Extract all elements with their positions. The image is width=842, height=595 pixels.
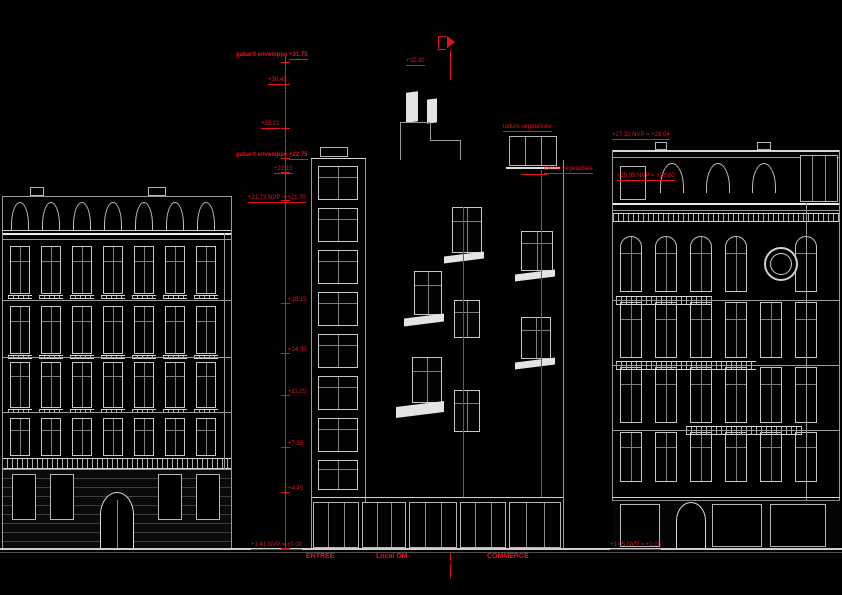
- building-edge: [839, 150, 840, 549]
- storefront: [362, 502, 406, 548]
- sill-tray: [515, 270, 555, 282]
- dormer-window: [42, 202, 60, 230]
- label-local-om: Local OM: [376, 553, 408, 560]
- facade-window: [41, 418, 61, 456]
- right-level-annotation: +27.32 NVP = +28.04: [612, 132, 670, 139]
- level-annotation: +22.10: [274, 166, 293, 173]
- street-level-left: +1.41 NVP = +0.00: [251, 542, 302, 549]
- french-window: [620, 367, 642, 423]
- sill-tray: [396, 401, 444, 418]
- french-window: [690, 236, 712, 292]
- step-line: [430, 122, 431, 140]
- storefront: [620, 504, 660, 547]
- step-line: [400, 122, 401, 160]
- facade-window: [454, 300, 480, 338]
- french-window: [690, 432, 712, 482]
- window-rail: [132, 295, 156, 299]
- dormer-window: [197, 202, 215, 230]
- sill-tray: [444, 252, 484, 264]
- french-window: [655, 432, 677, 482]
- gabarit-label: gabarit enveloppe: [236, 152, 287, 158]
- dimension-tick: [281, 62, 290, 63]
- roof-step-panel: [427, 98, 437, 123]
- facade-window: [134, 306, 154, 354]
- building-edge: [2, 196, 3, 549]
- tower-window: [318, 460, 358, 490]
- step-line: [400, 122, 430, 123]
- french-window: [725, 302, 747, 358]
- french-window: [655, 236, 677, 292]
- french-window: [725, 236, 747, 292]
- window-rail: [70, 295, 94, 299]
- ground-window: [196, 474, 220, 520]
- dormer-window: [104, 202, 122, 230]
- balustrade-band: [2, 458, 232, 469]
- facade-window: [165, 306, 185, 354]
- facade-window: [521, 231, 553, 271]
- window-rail: [163, 295, 187, 299]
- french-window: [725, 432, 747, 482]
- pavilion-mullion: [525, 137, 526, 165]
- french-window: [620, 236, 642, 292]
- sill-tray: [404, 314, 444, 327]
- storefront-mullion: [328, 503, 329, 547]
- storefront-mullion: [377, 503, 378, 547]
- storefront-mullion: [344, 503, 345, 547]
- french-window: [655, 367, 677, 423]
- section-marker-icon: [438, 36, 446, 50]
- storefront-mullion: [391, 503, 392, 547]
- facade-window: [72, 418, 92, 456]
- chimney: [30, 187, 44, 196]
- facade-window: [41, 362, 61, 408]
- facade-edge: [541, 170, 542, 497]
- dimension-tick: [281, 128, 290, 129]
- section-line: [450, 50, 451, 80]
- level-annotation: +30.48: [268, 77, 287, 84]
- entrance-door: [676, 502, 706, 549]
- attic-mullion: [812, 156, 813, 201]
- dormer-window: [706, 163, 730, 193]
- window-rail: [101, 295, 125, 299]
- french-window: [690, 302, 712, 358]
- leader-line: [521, 174, 547, 175]
- attic-mullion: [825, 156, 826, 201]
- tower-parapet: [320, 147, 348, 157]
- french-window: [725, 367, 747, 423]
- storefront-mullion: [526, 503, 527, 547]
- roof-line: [2, 196, 232, 197]
- gabarit-annotation-top: gabarit enveloppe +31.75: [236, 52, 308, 59]
- storefront: [313, 502, 359, 548]
- gabarit-value: +22.75: [289, 152, 308, 160]
- roof-line: [612, 150, 840, 152]
- string-course: [2, 300, 232, 301]
- facade-window: [521, 317, 551, 359]
- cornice: [2, 233, 232, 240]
- facade-window: [196, 306, 216, 354]
- step-line: [460, 140, 461, 160]
- storefront-mullion: [544, 503, 545, 547]
- facade-window: [10, 306, 30, 354]
- facade-window: [72, 246, 92, 294]
- section-line: [450, 564, 451, 578]
- tower-edge: [311, 158, 312, 549]
- facade-window: [72, 306, 92, 354]
- facade-window: [165, 246, 185, 294]
- tower-window: [318, 166, 358, 200]
- label-commerce: COMMERCE: [487, 553, 529, 560]
- facade-window: [196, 362, 216, 408]
- step-line: [430, 140, 460, 141]
- floor-level: +14.35: [288, 347, 307, 354]
- facade-window: [414, 271, 442, 315]
- roof-label-1: toiture végétalisée: [503, 124, 552, 131]
- tower-edge: [365, 158, 366, 549]
- facade-window: [41, 306, 61, 354]
- tower-window: [318, 208, 358, 242]
- building-edge: [231, 196, 232, 549]
- dormer-window: [166, 202, 184, 230]
- oculus-inner: [770, 253, 792, 275]
- dormer-window: [752, 163, 776, 193]
- facade-window: [103, 418, 123, 456]
- ridge-level: +32.30: [406, 58, 425, 65]
- section-arrow-icon: [447, 36, 455, 48]
- window-rail: [39, 295, 63, 299]
- facade-window: [196, 418, 216, 456]
- door-leaf-line: [117, 500, 118, 549]
- french-window: [620, 432, 642, 482]
- tower-window: [318, 250, 358, 284]
- french-window: [620, 302, 642, 358]
- ground-window: [12, 474, 36, 520]
- storefront-mullion: [475, 503, 476, 547]
- floor-level: +11.25: [288, 389, 306, 396]
- roof-pavilion: [509, 136, 557, 166]
- roof-step-panel: [406, 91, 418, 122]
- facade-window: [72, 362, 92, 408]
- tower-window: [318, 292, 358, 326]
- facade-window: [452, 207, 482, 253]
- elevation-sheet: gabarit enveloppe +31.75 +30.48 +25.21 g…: [0, 0, 842, 595]
- facade-edge: [563, 160, 564, 549]
- french-window: [760, 302, 782, 358]
- floor-level: +7.35: [288, 441, 303, 448]
- facade-edge: [463, 207, 464, 497]
- facade-window: [10, 418, 30, 456]
- chimney: [757, 142, 771, 150]
- facade-window: [134, 362, 154, 408]
- facade-drawing-layer: [0, 0, 842, 595]
- string-course: [2, 412, 232, 413]
- gabarit-annotation-low: gabarit enveloppe +22.75: [236, 152, 308, 159]
- tower-top: [311, 158, 366, 159]
- ground-line-lower: [0, 552, 842, 553]
- facade-window: [10, 362, 30, 408]
- attic-window: [620, 166, 646, 200]
- street-level-right: +1.05 NVP = +1.05: [610, 542, 661, 549]
- window-rail: [8, 295, 32, 299]
- storefront: [770, 504, 826, 547]
- floor-level: +4.45: [288, 486, 303, 493]
- facade-window: [134, 418, 154, 456]
- tower-window: [318, 376, 358, 410]
- french-window: [655, 302, 677, 358]
- label-entree: ENTREE: [306, 553, 334, 560]
- french-window: [690, 367, 712, 423]
- ground-window: [158, 474, 182, 520]
- tower-window: [318, 334, 358, 368]
- left-building-top-level: +21.73 NVP = +21.70: [248, 195, 306, 202]
- facade-window: [196, 246, 216, 294]
- pavilion-mullion: [541, 137, 542, 165]
- ground-line: [0, 548, 842, 550]
- window-rail: [194, 295, 218, 299]
- pilaster: [224, 233, 225, 469]
- level-annotation: +25.21: [261, 121, 280, 128]
- storefront-mullion: [491, 503, 492, 547]
- building-edge: [612, 150, 613, 549]
- facade-window: [165, 362, 185, 408]
- dormer-window: [73, 202, 91, 230]
- facade-window: [103, 362, 123, 408]
- storefront: [460, 502, 506, 548]
- facade-window: [103, 246, 123, 294]
- sign-band: [612, 497, 840, 498]
- floor-level: +18.15: [288, 297, 307, 304]
- storefront-mullion: [425, 503, 426, 547]
- string-course: [2, 230, 232, 231]
- facade-window: [165, 418, 185, 456]
- french-window: [760, 432, 782, 482]
- sill-tray: [515, 358, 555, 370]
- gabarit-label: gabarit enveloppe: [236, 52, 287, 58]
- storefront-line: [311, 497, 563, 498]
- facade-window: [134, 246, 154, 294]
- dormer-window: [11, 202, 29, 230]
- facade-window: [10, 246, 30, 294]
- ground-window: [50, 474, 74, 520]
- roof-label-2: toiture végétalisée: [544, 166, 593, 173]
- gabarit-value: +31.75: [289, 52, 308, 60]
- tower-window: [318, 418, 358, 452]
- facade-window: [41, 246, 61, 294]
- facade-window: [454, 390, 480, 432]
- section-line: [450, 553, 451, 561]
- storefront-mullion: [441, 503, 442, 547]
- storefront: [712, 504, 762, 547]
- storefront: [409, 502, 457, 548]
- chimney: [655, 142, 667, 150]
- facade-window: [412, 357, 442, 403]
- facade-window: [103, 306, 123, 354]
- right-level-annotation: +25.95 NVP = +26.60: [617, 173, 675, 180]
- chimney: [148, 187, 166, 196]
- dormer-window: [135, 202, 153, 230]
- string-course: [2, 357, 232, 358]
- french-window: [760, 367, 782, 423]
- attic-window: [800, 155, 838, 202]
- storefront: [509, 502, 561, 548]
